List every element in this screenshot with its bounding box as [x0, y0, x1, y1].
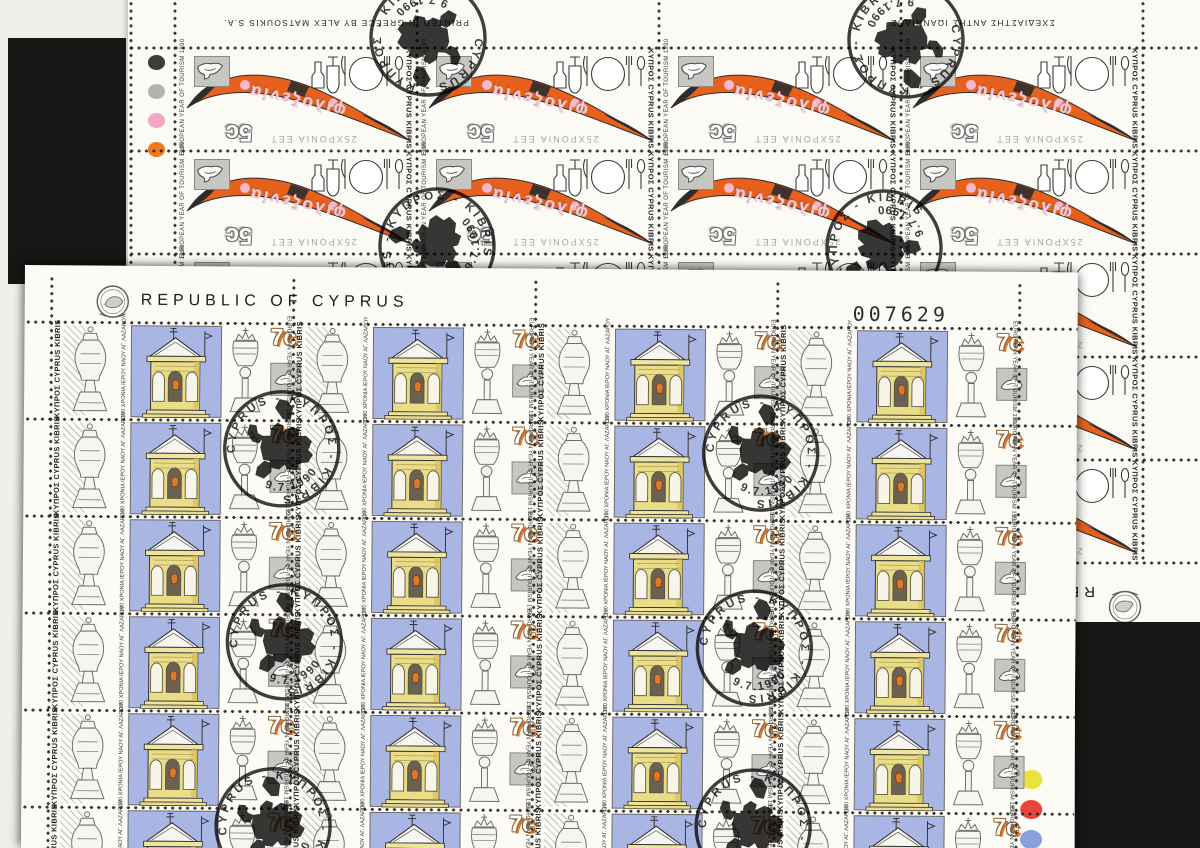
stamp-7c-st-lazarus: ΚΥΠΡΟΣ CYPRUS KIBRIS 1100 ΧΡΟΝΙΑ ΙΕΡΟΥ Ν… — [777, 327, 1020, 426]
stamp-denomination: 5c — [468, 118, 495, 146]
stamp-country-label: ΚΥΠΡΟΣ CYPRUS KIBRIS — [647, 142, 656, 262]
stamp-caption: 25ΧΡΟΝΙΑ ΕΕΤ — [511, 237, 599, 247]
stamp-7c-st-lazarus: ΚΥΠΡΟΣ CYPRUS KIBRIS 1100 ΧΡΟΝΙΑ ΙΕΡΟΥ Ν… — [535, 326, 778, 425]
chalice-artwork-right — [947, 621, 992, 714]
bird-icon — [920, 159, 956, 190]
church-artwork — [127, 616, 222, 715]
chalice-artwork-right — [465, 327, 510, 420]
chalice-artwork-right — [464, 521, 509, 614]
chalice-artwork-left — [550, 328, 599, 421]
scanned-stamp-sheets: PRINTED IN GREECE BY ALEX MATSOUKIS S.A.… — [0, 0, 1200, 848]
chalice-artwork-right — [220, 713, 265, 806]
stamp-7c-st-lazarus: ΚΥΠΡΟΣ CYPRUS KIBRIS 1100 ΧΡΟΝΙΑ ΙΕΡΟΥ Ν… — [776, 521, 1019, 620]
stamp-7c-st-lazarus: ΚΥΠΡΟΣ CYPRUS KIBRIS 1100 ΧΡΟΝΙΑ ΙΕΡΟΥ Ν… — [533, 617, 776, 716]
stamp-country-label: ΚΥΠΡΟΣ CYPRUS KIBRIS — [533, 797, 543, 848]
stamp-country-label: ΚΥΠΡΟΣ CYPRUS KIBRIS — [889, 39, 898, 159]
church-artwork — [853, 621, 948, 720]
church-artwork — [371, 326, 466, 425]
chalice-artwork-right — [706, 426, 751, 519]
stamp-denomination: 5c — [952, 118, 979, 146]
stamp-country-label: ΚΥΠΡΟΣ CYPRUS KIBRIS — [1131, 142, 1140, 262]
stamp-caption: 25ΧΡΟΝΙΑ ΕΕΤ — [269, 134, 357, 144]
chalice-artwork-right — [221, 616, 266, 709]
color-registration-dot — [148, 142, 165, 157]
stamp-caption: 25ΧΡΟΝΙΑ ΕΕΤ — [269, 237, 357, 247]
chalice-artwork-right — [707, 329, 752, 422]
stamp-caption: 25ΧΡΟΝΙΑ ΕΕΤ — [753, 237, 841, 247]
stamp-denomination: 7c — [989, 426, 1029, 453]
church-artwork — [855, 330, 950, 429]
stamp-7c-st-lazarus: ΚΥΠΡΟΣ CYPRUS KIBRIS 1100 ΧΡΟΝΙΑ ΙΕΡΟΥ Ν… — [776, 424, 1019, 523]
stamp-7c-st-lazarus: ΚΥΠΡΟΣ CYPRUS KIBRIS 1100 ΧΡΟΝΙΑ ΙΕΡΟΥ Ν… — [291, 615, 534, 714]
stamp-7c-st-lazarus: ΚΥΠΡΟΣ CYPRUS KIBRIS 1100 ΧΡΟΝΙΑ ΙΕΡΟΥ Ν… — [532, 714, 775, 813]
church-artwork — [129, 325, 224, 424]
chalice-artwork-left — [305, 714, 354, 807]
chalice-artwork-right — [462, 715, 507, 808]
stamp-caption: 25ΧΡΟΝΙΑ ΕΕΤ — [753, 134, 841, 144]
chalice-artwork-right — [464, 424, 509, 517]
chalice-artwork-right — [949, 330, 994, 423]
church-artwork — [126, 713, 221, 812]
stamp-5c-tourism: EUROPEAN YEAR OF TOURISM 1990 φιλοξενία … — [175, 48, 417, 151]
stamp-country-label: ΚΥΠΡΟΣ CYPRUS KIBRIS — [889, 142, 898, 262]
stamp-year-label: EUROPEAN YEAR OF TOURISM 1990 — [906, 37, 912, 157]
stamp-year-label: EUROPEAN YEAR OF TOURISM 1990 — [906, 140, 912, 260]
stamp-commemoration-label: 1100 ΧΡΟΝΙΑ ΙΕΡΟΥ ΝΑΟΥ ΑΓ. ΛΑΖΑΡΟΥ — [843, 798, 850, 848]
stamp-country-label: ΚΥΠΡΟΣ CYPRUS KIBRIS — [647, 39, 656, 159]
chalice-artwork-left — [549, 522, 598, 615]
chalice-artwork-left — [66, 324, 115, 417]
stamp-year-label: EUROPEAN YEAR OF TOURISM 1990 — [180, 140, 186, 260]
chalice-artwork-right — [463, 618, 508, 711]
stamp-7c-st-lazarus: ΚΥΠΡΟΣ CYPRUS KIBRIS 1100 ΧΡΟΝΙΑ ΙΕΡΟΥ Ν… — [48, 807, 291, 848]
church-artwork — [854, 524, 949, 623]
church-artwork — [611, 619, 706, 718]
stamp-7c-st-lazarus: ΚΥΠΡΟΣ CYPRUS KIBRIS 1100 ΧΡΟΝΙΑ ΙΕΡΟΥ Ν… — [774, 715, 1017, 814]
chalice-artwork-left — [547, 716, 596, 809]
stamp-country-label: ΚΥΠΡΟΣ CYPRUS KIBRIS — [291, 795, 301, 848]
church-artwork — [370, 520, 465, 619]
chalice-artwork-left — [308, 326, 357, 419]
cyprus-emblem — [1105, 585, 1145, 625]
chalice-artwork-right — [220, 810, 265, 848]
stamp-year-label: EUROPEAN YEAR OF TOURISM 1990 — [422, 140, 428, 260]
chalice-artwork-left — [306, 617, 355, 710]
chalice-artwork-left — [789, 717, 838, 810]
stamp-7c-st-lazarus: ΚΥΠΡΟΣ CYPRUS KIBRIS 1100 ΧΡΟΝΙΑ ΙΕΡΟΥ Ν… — [48, 710, 291, 809]
stamp-denomination: 5c — [710, 221, 737, 249]
church-artwork — [369, 617, 464, 716]
bird-icon — [678, 159, 714, 190]
stamp-7c-st-lazarus: ΚΥΠΡΟΣ CYPRUS KIBRIS 1100 ΧΡΟΝΙΑ ΙΕΡΟΥ Ν… — [775, 618, 1018, 717]
cyprus-emblem — [93, 283, 133, 323]
stamp-denomination: 7c — [987, 717, 1027, 744]
stamp-7c-st-lazarus: ΚΥΠΡΟΣ CYPRUS KIBRIS 1100 ΧΡΟΝΙΑ ΙΕΡΟΥ Ν… — [292, 518, 535, 617]
stamp-country-label: ΚΥΠΡΟΣ CYPRUS KIBRIS — [1131, 348, 1140, 468]
chalice-artwork-right — [946, 815, 991, 848]
bird-icon — [678, 56, 714, 87]
stamp-7c-st-lazarus: ΚΥΠΡΟΣ CYPRUS KIBRIS 1100 ΧΡΟΝΙΑ ΙΕΡΟΥ Ν… — [290, 809, 533, 848]
stamp-country-label: ΚΥΠΡΟΣ CYPRUS KIBRIS — [775, 799, 785, 848]
church-artwork — [852, 718, 947, 817]
color-registration-dot — [148, 55, 165, 70]
chalice-artwork-left — [549, 425, 598, 518]
stamp-denomination: 7c — [987, 620, 1027, 647]
stamp-year-label: EUROPEAN YEAR OF TOURISM 1990 — [180, 37, 186, 157]
chalice-artwork-right — [948, 427, 993, 520]
sheet-serial-number: 007629 — [853, 302, 949, 327]
chalice-artwork-right — [948, 524, 993, 617]
chalice-artwork-left — [305, 811, 354, 848]
church-artwork — [128, 422, 223, 521]
stamp-year-label: EUROPEAN YEAR OF TOURISM 1990 — [664, 37, 670, 157]
chalice-artwork-left — [792, 329, 841, 422]
chalice-artwork-right — [222, 519, 267, 612]
chalice-artwork-left — [307, 423, 356, 516]
stamp-7c-st-lazarus: ΚΥΠΡΟΣ CYPRUS KIBRIS 1100 ΧΡΟΝΙΑ ΙΕΡΟΥ Ν… — [51, 322, 294, 421]
stamp-year-label: EUROPEAN YEAR OF TOURISM 1990 — [281, 794, 288, 848]
stamp-commemoration-label: 1100 ΧΡΟΝΙΑ ΙΕΡΟΥ ΝΑΟΥ ΑΓ. ΛΑΖΑΡΟΥ — [117, 793, 124, 848]
chalice-artwork-left — [547, 813, 596, 848]
stamp-denomination: 5c — [226, 118, 253, 146]
church-artwork — [612, 522, 707, 621]
stamp-7c-st-lazarus: ΚΥΠΡΟΣ CYPRUS KIBRIS 1100 ΧΡΟΝΙΑ ΙΕΡΟΥ Ν… — [534, 423, 777, 522]
stamp-denomination: 5c — [468, 221, 495, 249]
church-artwork — [854, 427, 949, 526]
scan-background-block-bottom-right — [1075, 622, 1200, 848]
church-artwork — [610, 716, 705, 815]
stamp-year-label: EUROPEAN YEAR OF TOURISM 1990 — [664, 140, 670, 260]
stamp-commemoration-label: 1100 ΧΡΟΝΙΑ ΙΕΡΟΥ ΝΑΟΥ ΑΓ. ΛΑΖΑΡΟΥ — [359, 794, 366, 848]
stamp-country-label: ΚΥΠΡΟΣ CYPRUS KIBRIS — [405, 39, 414, 159]
scan-background-block-top-left — [8, 38, 126, 284]
stamp-5c-tourism: EUROPEAN YEAR OF TOURISM 1990 φιλοξενία … — [901, 151, 1143, 254]
church-artwork — [370, 423, 465, 522]
stamp-7c-st-lazarus: ΚΥΠΡΟΣ CYPRUS KIBRIS 1100 ΧΡΟΝΙΑ ΙΕΡΟΥ Ν… — [534, 520, 777, 619]
stamp-7c-st-lazarus: ΚΥΠΡΟΣ CYPRUS KIBRIS 1100 ΧΡΟΝΙΑ ΙΕΡΟΥ Ν… — [290, 712, 533, 811]
stamp-7c-st-lazarus: ΚΥΠΡΟΣ CYPRUS KIBRIS 1100 ΧΡΟΝΙΑ ΙΕΡΟΥ Ν… — [774, 812, 1017, 848]
svg-text:9.7.1990: 9.7.1990 — [858, 0, 920, 34]
stamp-country-label: ΚΥΠΡΟΣ CYPRUS KIBRIS — [1131, 39, 1140, 159]
stamp-country-label: ΚΥΠΡΟΣ CYPRUS KIBRIS — [49, 794, 59, 848]
church-artwork — [613, 328, 708, 427]
chalice-artwork-right — [705, 620, 750, 713]
stamp-caption: 25ΧΡΟΝΙΑ ΕΕΤ — [995, 134, 1083, 144]
bird-icon — [194, 56, 230, 87]
stamp-year-label: EUROPEAN YEAR OF TOURISM 1990 — [422, 37, 428, 157]
stamp-5c-tourism: EUROPEAN YEAR OF TOURISM 1990 φιλοξενία … — [659, 151, 901, 254]
stamp-7c-st-lazarus: ΚΥΠΡΟΣ CYPRUS KIBRIS 1100 ΧΡΟΝΙΑ ΙΕΡΟΥ Ν… — [292, 421, 535, 520]
chalice-artwork-left — [791, 523, 840, 616]
stamp-caption: 25ΧΡΟΝΙΑ ΕΕΤ — [511, 134, 599, 144]
bird-icon — [436, 159, 472, 190]
church-artwork — [610, 813, 705, 848]
stamp-7c-st-lazarus: ΚΥΠΡΟΣ CYPRUS KIBRIS 1100 ΧΡΟΝΙΑ ΙΕΡΟΥ Ν… — [293, 324, 536, 423]
printer-imprint-text: PRINTED IN GREECE BY ALEX MATSOUKIS S.A. — [223, 18, 469, 28]
church-artwork — [126, 810, 221, 848]
church-artwork — [612, 425, 707, 524]
bird-icon — [436, 56, 472, 87]
stamp-country-label: ΚΥΠΡΟΣ CYPRUS KIBRIS — [1131, 451, 1140, 571]
stamp-5c-tourism: EUROPEAN YEAR OF TOURISM 1990 φιλοξενία … — [901, 48, 1143, 151]
stamp-caption: 25ΧΡΟΝΙΑ ΕΕΤ — [995, 237, 1083, 247]
stamp-year-label: EUROPEAN YEAR OF TOURISM 1990 — [765, 797, 772, 848]
chalice-artwork-right — [706, 523, 751, 616]
church-artwork — [368, 811, 463, 848]
chalice-artwork-left — [548, 619, 597, 712]
church-artwork — [368, 714, 463, 813]
chalice-artwork-right — [704, 814, 749, 848]
stamp-5c-tourism: EUROPEAN YEAR OF TOURISM 1990 φιλοξενία … — [175, 151, 417, 254]
stamp-5c-tourism: EUROPEAN YEAR OF TOURISM 1990 φιλοξενία … — [417, 48, 659, 151]
stamp-country-label: ΚΥΠΡΟΣ CYPRUS KIBRIS — [1131, 245, 1140, 365]
stamp-year-label: EUROPEAN YEAR OF TOURISM 1990 — [523, 795, 530, 848]
stamp-7c-st-lazarus: ΚΥΠΡΟΣ CYPRUS KIBRIS 1100 ΧΡΟΝΙΑ ΙΕΡΟΥ Ν… — [50, 516, 293, 615]
chalice-artwork-left — [307, 520, 356, 613]
stamp-5c-tourism: EUROPEAN YEAR OF TOURISM 1990 φιλοξενία … — [659, 48, 901, 151]
bird-icon — [194, 159, 230, 190]
stamp-denomination: 7c — [989, 329, 1029, 356]
stamp-7c-st-lazarus: ΚΥΠΡΟΣ CYPRUS KIBRIS 1100 ΧΡΟΝΙΑ ΙΕΡΟΥ Ν… — [532, 811, 775, 848]
chalice-artwork-left — [789, 814, 838, 848]
stamp-denomination: 5c — [710, 118, 737, 146]
chalice-artwork-left — [791, 426, 840, 519]
chalice-artwork-left — [64, 615, 113, 708]
stamp-7c-st-lazarus: ΚΥΠΡΟΣ CYPRUS KIBRIS 1100 ΧΡΟΝΙΑ ΙΕΡΟΥ Ν… — [50, 419, 293, 518]
stamp-denomination: 7c — [988, 523, 1028, 550]
chalice-artwork-left — [63, 712, 112, 805]
designer-imprint-text: ΣΧΕΔΙΑΣΤΗΣ ΑΝΤΗΣ ΙΩΑΝΝΙΔΗΣ — [890, 18, 1055, 28]
chalice-artwork-left — [65, 518, 114, 611]
chalice-artwork-right — [462, 812, 507, 848]
chalice-artwork-left — [790, 620, 839, 713]
stamp-denomination: 5c — [952, 221, 979, 249]
bottom-stamp-sheet-7c: REPUBLIC OF CYPRUS 007629 ΚΥΠΡΟΣ CYPRUS … — [21, 265, 1078, 848]
stamp-7c-st-lazarus: ΚΥΠΡΟΣ CYPRUS KIBRIS 1100 ΧΡΟΝΙΑ ΙΕΡΟΥ Ν… — [49, 613, 292, 712]
chalice-artwork-right — [704, 717, 749, 810]
chalice-artwork-left — [65, 421, 114, 514]
color-registration-dot — [148, 84, 165, 99]
chalice-artwork-left — [63, 809, 112, 848]
church-artwork — [851, 815, 946, 848]
chalice-artwork-right — [223, 325, 268, 418]
chalice-artwork-right — [946, 718, 991, 811]
church-artwork — [128, 519, 223, 618]
chalice-artwork-right — [222, 422, 267, 515]
stamp-5c-tourism: EUROPEAN YEAR OF TOURISM 1990 φιλοξενία … — [417, 151, 659, 254]
stamp-denomination: 7c — [986, 814, 1026, 841]
stamp-year-label: EUROPEAN YEAR OF TOURISM 1990 — [1007, 799, 1014, 848]
stamp-commemoration-label: 1100 ΧΡΟΝΙΑ ΙΕΡΟΥ ΝΑΟΥ ΑΓ. ΛΑΖΑΡΟΥ — [601, 796, 608, 848]
stamp-denomination: 5c — [226, 221, 253, 249]
color-registration-dot — [148, 113, 165, 128]
bird-icon — [920, 56, 956, 87]
stamp-country-label: ΚΥΠΡΟΣ CYPRUS KIBRIS — [405, 142, 414, 262]
